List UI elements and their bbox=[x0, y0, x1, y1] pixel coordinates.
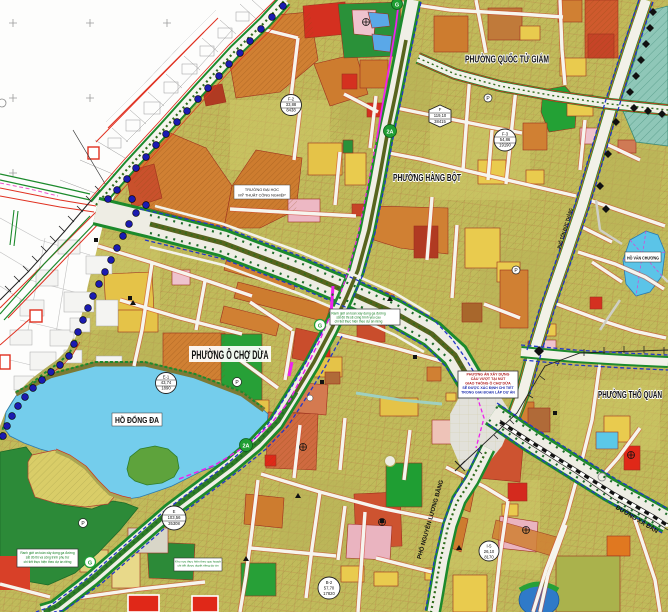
svg-text:G: G bbox=[318, 324, 322, 330]
svg-text:19190: 19190 bbox=[499, 143, 511, 148]
svg-text:2A: 2A bbox=[242, 444, 249, 450]
svg-text:chi tiết thực hiện theo dự án: chi tiết thực hiện theo dự án riêng bbox=[24, 560, 72, 564]
svg-text:PHƯỜNG THỔ QUAN: PHƯỜNG THỔ QUAN bbox=[598, 388, 662, 401]
svg-text:chi tiết thực hiện theo dự án: chi tiết thực hiện theo dự án riêng bbox=[335, 320, 383, 324]
svg-text:HỒ VĂN CHƯƠNG: HỒ VĂN CHƯƠNG bbox=[627, 255, 659, 262]
svg-text:103,56: 103,56 bbox=[168, 515, 181, 520]
svg-text:PHƯỜNG HÀNG BỘT: PHƯỜNG HÀNG BỘT bbox=[393, 171, 461, 184]
svg-text:TRONG GIAI ĐOẠN LẬP DỰ ÁN: TRONG GIAI ĐOẠN LẬP DỰ ÁN bbox=[461, 390, 515, 395]
svg-text:MỸ THUẬT CÔNG NGHIỆP: MỸ THUẬT CÔNG NGHIỆP bbox=[238, 193, 286, 198]
svg-text:33,88: 33,88 bbox=[286, 102, 297, 107]
svg-text:119,10: 119,10 bbox=[434, 113, 447, 118]
svg-text:G: G bbox=[88, 561, 92, 567]
svg-text:2A: 2A bbox=[386, 130, 393, 136]
svg-text:PHƯỜNG QUỐC TỬ GIÁM: PHƯỜNG QUỐC TỬ GIÁM bbox=[465, 52, 549, 66]
svg-text:E: E bbox=[173, 509, 176, 514]
svg-text:G: G bbox=[395, 3, 399, 9]
svg-text:PHƯƠNG ÁN XÂY DỰNG: PHƯƠNG ÁN XÂY DỰNG bbox=[467, 372, 510, 377]
svg-text:26,10: 26,10 bbox=[484, 549, 495, 554]
svg-text:F-3: F-3 bbox=[502, 132, 509, 137]
svg-text:TRƯỜNG ĐẠI HỌC: TRƯỜNG ĐẠI HỌC bbox=[245, 187, 279, 192]
svg-text:F-2: F-2 bbox=[288, 97, 295, 102]
svg-text:57,70: 57,70 bbox=[324, 586, 335, 591]
svg-text:17820: 17820 bbox=[323, 591, 335, 596]
svg-text:38415: 38415 bbox=[434, 119, 446, 124]
svg-text:I-5: I-5 bbox=[487, 544, 493, 549]
svg-text:sắt đô thị và công trình phụ t: sắt đô thị và công trình phụ trợ bbox=[26, 555, 69, 560]
svg-text:Ranh giới an toàn xây dựng ga: Ranh giới an toàn xây dựng ga đường bbox=[20, 551, 75, 555]
svg-text:HỒ ĐỐNG ĐA: HỒ ĐỐNG ĐA bbox=[115, 415, 159, 425]
svg-text:SẼ ĐƯỢC XÁC ĐỊNH CHI TIẾT: SẼ ĐƯỢC XÁC ĐỊNH CHI TIẾT bbox=[462, 385, 514, 390]
svg-text:F: F bbox=[439, 107, 442, 112]
svg-text:E-1: E-1 bbox=[163, 375, 170, 380]
svg-text:B-2: B-2 bbox=[326, 580, 333, 585]
svg-text:CẦU VƯỢT TẠI NÚT: CẦU VƯỢT TẠI NÚT bbox=[471, 376, 506, 381]
svg-text:1890: 1890 bbox=[161, 386, 171, 391]
svg-text:54,86: 54,86 bbox=[500, 137, 511, 142]
svg-text:8170: 8170 bbox=[484, 555, 494, 560]
svg-text:chi tiết được duyệt riêng dự á: chi tiết được duyệt riêng dự án bbox=[177, 564, 218, 568]
svg-text:8438: 8438 bbox=[286, 108, 296, 113]
svg-text:GIAO THÔNG Ô CHỢ DỪA: GIAO THÔNG Ô CHỢ DỪA bbox=[465, 381, 511, 386]
svg-text:PHƯỜNG Ô CHỢ DỪA: PHƯỜNG Ô CHỢ DỪA bbox=[192, 349, 269, 362]
svg-text:43,74: 43,74 bbox=[161, 380, 172, 385]
svg-text:35308: 35308 bbox=[168, 521, 180, 526]
